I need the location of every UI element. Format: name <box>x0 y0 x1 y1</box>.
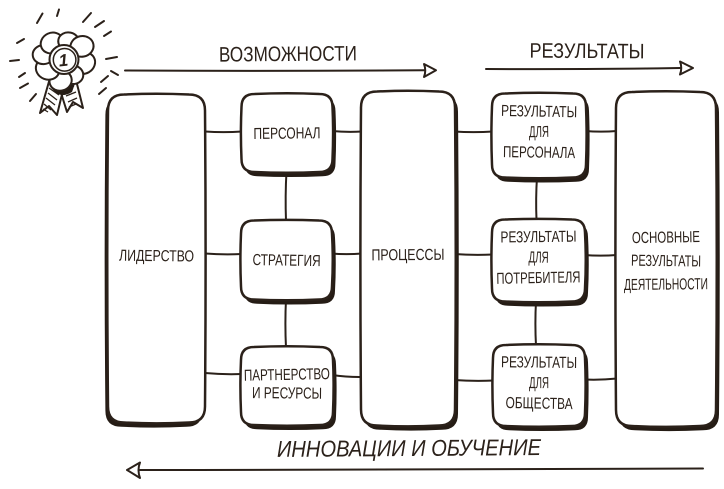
svg-text:ЛИДЕРСТВО: ЛИДЕРСТВО <box>119 248 194 266</box>
svg-text:ОСНОВНЫЕ: ОСНОВНЫЕ <box>632 229 700 247</box>
svg-text:ОБЩЕСТВА: ОБЩЕСТВА <box>505 395 573 413</box>
svg-text:РЕЗУЛЬТАТЫ: РЕЗУЛЬТАТЫ <box>500 229 576 247</box>
svg-text:ВОЗМОЖНОСТИ: ВОЗМОЖНОСТИ <box>219 42 357 66</box>
svg-text:ДЛЯ: ДЛЯ <box>529 375 549 392</box>
svg-text:ПРОЦЕССЫ: ПРОЦЕССЫ <box>371 247 444 265</box>
svg-text:1: 1 <box>58 51 69 71</box>
svg-text:И РЕСУРСЫ: И РЕСУРСЫ <box>252 385 322 403</box>
svg-text:ДЕЯТЕЛЬНОСТИ: ДЕЯТЕЛЬНОСТИ <box>624 276 708 294</box>
svg-text:ПАРТНЕРСТВО: ПАРТНЕРСТВО <box>244 366 330 385</box>
svg-text:ДЛЯ: ДЛЯ <box>529 124 549 141</box>
svg-text:РЕЗУЛЬТАТЫ: РЕЗУЛЬТАТЫ <box>631 253 701 271</box>
svg-text:ПЕРСОНАЛА: ПЕРСОНАЛА <box>503 144 575 162</box>
svg-text:СТРАТЕГИЯ: СТРАТЕГИЯ <box>252 252 320 270</box>
svg-text:ПОТРЕБИТЕЛЯ: ПОТРЕБИТЕЛЯ <box>496 269 580 288</box>
svg-text:ИННОВАЦИИ И ОБУЧЕНИЕ: ИННОВАЦИИ И ОБУЧЕНИЕ <box>277 434 542 462</box>
svg-text:РЕЗУЛЬТАТЫ: РЕЗУЛЬТАТЫ <box>529 40 644 64</box>
svg-text:ДЛЯ: ДЛЯ <box>528 249 548 266</box>
svg-text:РЕЗУЛЬТАТЫ: РЕЗУЛЬТАТЫ <box>501 103 577 121</box>
svg-text:ПЕРСОНАЛ: ПЕРСОНАЛ <box>253 125 320 143</box>
svg-text:РЕЗУЛЬТАТЫ: РЕЗУЛЬТАТЫ <box>501 354 577 372</box>
